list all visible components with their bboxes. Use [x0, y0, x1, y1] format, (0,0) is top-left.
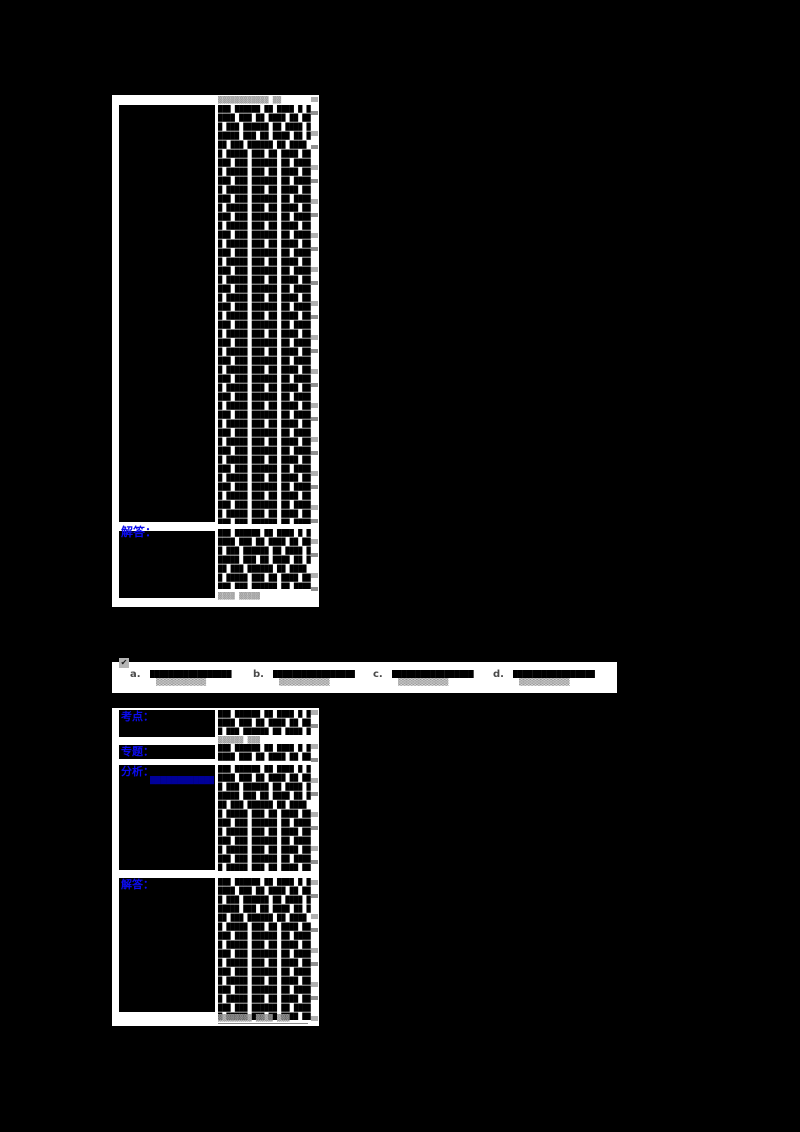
option-a-blank: █████████████████: [150, 670, 234, 678]
answer-row-body: ███ ██████ ██ ████ █ █████ ███ ██ ████ █…: [218, 529, 311, 589]
question-stem-header: ▓▓▓▓▓▓▓▓▓▓▓▓ ▓▓: [218, 96, 311, 105]
option-b-caption: ▒▒▒▒▒▒▒▒▒▒▒▒: [279, 678, 357, 686]
solution-row-jieda-cell: 解答：: [119, 878, 215, 1012]
option-b-letter: b.: [253, 670, 264, 686]
solution-row-zhuanti-body: ███ ██████ ██ ████ █ █████ ███ ██ ████ █…: [218, 744, 311, 761]
option-a-letter: a.: [130, 670, 141, 686]
solution-row-zhuanti-cell: 专题：: [119, 745, 215, 759]
clipped-text-strip: [311, 97, 318, 602]
option-c-caption: ▒▒▒▒▒▒▒▒▒▒▒▒: [398, 678, 476, 686]
solution-row-kaodian-label: 考点：: [119, 710, 215, 724]
question-table: ▓▓▓▓▓▓▓▓▓▓▓▓ ▓▓ ███ ██████ ██ ████ █ ███…: [112, 95, 319, 607]
page-background: { "colors": { "page_background": "#00000…: [0, 0, 800, 1132]
option-c-letter: c.: [373, 670, 383, 686]
option-a-caption: ▒▒▒▒▒▒▒▒▒▒▒▒: [156, 678, 234, 686]
solution-row-fenxi-cell: 分析： ████████████: [119, 765, 215, 870]
solution-row-fenxi-body: ███ ██████ ██ ████ █ █████ ███ ██ ████ █…: [218, 765, 311, 871]
solution-table: 考点： ███ ██████ ██ ████ █ █████ ███ ██ ██…: [112, 708, 319, 1026]
option-d-blank: █████████████████: [513, 670, 605, 678]
solution-row-fenxi-link[interactable]: ████████████: [150, 776, 214, 785]
solution-row-zhuanti-label: 专题：: [119, 745, 215, 759]
checkbox-icon[interactable]: ✔: [119, 658, 129, 668]
solution-row-jieda-label: 解答：: [119, 878, 215, 892]
option-b: b. █████████████████ ▒▒▒▒▒▒▒▒▒▒▒▒: [253, 670, 357, 686]
option-a: a. █████████████████ ▒▒▒▒▒▒▒▒▒▒▒▒: [130, 670, 234, 686]
option-d-caption: ▒▒▒▒▒▒▒▒▒▒▒▒: [519, 678, 605, 686]
clipped-text-strip: [311, 710, 318, 1022]
solution-row-kaodian-body: ███ ██████ ██ ████ █ █████ ███ ██ ████ █…: [218, 710, 311, 735]
solution-row-jieda-body: ███ ██████ ██ ████ █ █████ ███ ██ ████ █…: [218, 878, 311, 1020]
choice-options-bar: ✔ a. █████████████████ ▒▒▒▒▒▒▒▒▒▒▒▒ b. █…: [112, 662, 617, 693]
option-b-blank: █████████████████: [273, 670, 357, 678]
question-stem-text-cell: ▓▓▓▓▓▓▓▓▓▓▓▓ ▓▓ ███ ██████ ██ ████ █ ███…: [218, 96, 311, 524]
answer-row-label: 解答：: [121, 526, 157, 539]
question-stem-image: [119, 105, 215, 522]
option-c: c. █████████████████ ▒▒▒▒▒▒▒▒▒▒▒▒: [373, 670, 476, 686]
option-d: d. █████████████████ ▒▒▒▒▒▒▒▒▒▒▒▒: [493, 670, 605, 686]
question-stem-body: ███ ██████ ██ ████ █ █████ ███ ██ ████ █…: [218, 105, 311, 524]
answer-row-image: [119, 531, 215, 598]
answer-row-footer: ▓▓▓▓ ▓▓▓▓▓: [218, 592, 311, 601]
option-c-blank: █████████████████: [392, 670, 476, 678]
solution-row-jieda-footer: ▓▓▓▓▓▓▓▓ ▓▓▓▓ ▓▓▓: [218, 1014, 308, 1024]
option-d-letter: d.: [493, 670, 504, 686]
solution-row-kaodian-cell: 考点：: [119, 710, 215, 737]
